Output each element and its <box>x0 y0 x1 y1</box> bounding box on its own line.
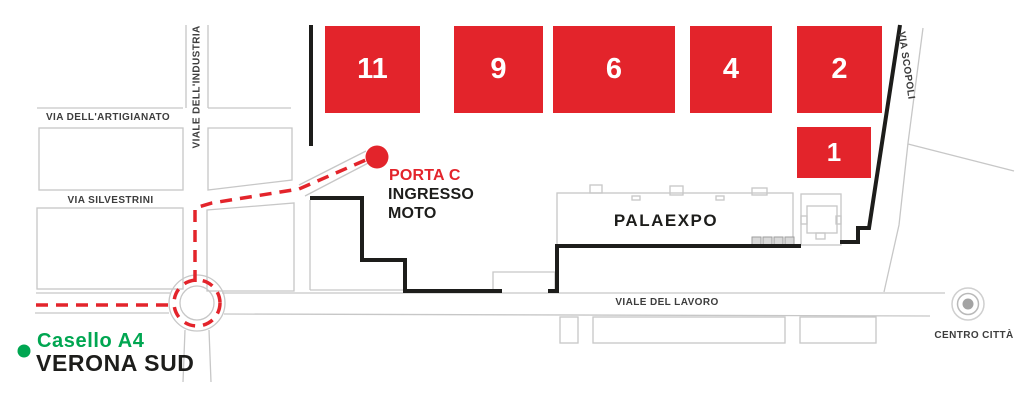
route-dashed-line <box>36 159 368 326</box>
street-label-silvestrini: VIA SILVESTRINI <box>48 195 173 206</box>
porta-c-label: PORTA C <box>389 167 461 185</box>
hall-number: 2 <box>831 53 847 86</box>
porta-c-red-dot-icon <box>366 146 389 169</box>
city-block <box>39 128 183 190</box>
city-block <box>800 317 876 343</box>
centro-citta-bullseye-icon <box>952 288 984 320</box>
roundabout-circle <box>169 275 225 331</box>
city-block <box>207 203 294 291</box>
roundabout-circle <box>180 286 214 320</box>
casello-green-dot-icon <box>18 345 31 358</box>
street-label-lavoro: VIALE DEL LAVORO <box>597 297 737 308</box>
map-canvas: 11 9 6 4 2 1 VIA DELL'ARTIGIANATO VIA SI… <box>0 0 1024 410</box>
street-label-artigianato: VIA DELL'ARTIGIANATO <box>38 112 178 123</box>
hall-number: 4 <box>723 53 739 86</box>
palaexpo-label: PALAEXPO <box>596 211 736 231</box>
hall-9: 9 <box>454 26 543 113</box>
centro-citta-label: CENTRO CITTÀ <box>915 330 1024 341</box>
hall-2: 2 <box>797 26 882 113</box>
ingresso-label: INGRESSO <box>388 186 474 204</box>
hall-6: 6 <box>553 26 675 113</box>
city-block <box>560 317 578 343</box>
hall-1: 1 <box>797 127 871 178</box>
hall-11: 11 <box>325 26 420 113</box>
hall-number: 6 <box>606 53 622 86</box>
city-block <box>37 208 183 289</box>
city-block <box>208 128 292 190</box>
hall-number: 1 <box>827 137 841 168</box>
hall-number: 11 <box>357 53 388 86</box>
hall-number: 9 <box>490 53 506 86</box>
street-label-industria: VIALE DELL'INDUSTRIA <box>192 29 203 149</box>
city-block <box>593 317 785 343</box>
verona-sud-label: VERONA SUD <box>36 350 195 377</box>
moto-label: MOTO <box>388 205 437 223</box>
hall-4: 4 <box>690 26 772 113</box>
